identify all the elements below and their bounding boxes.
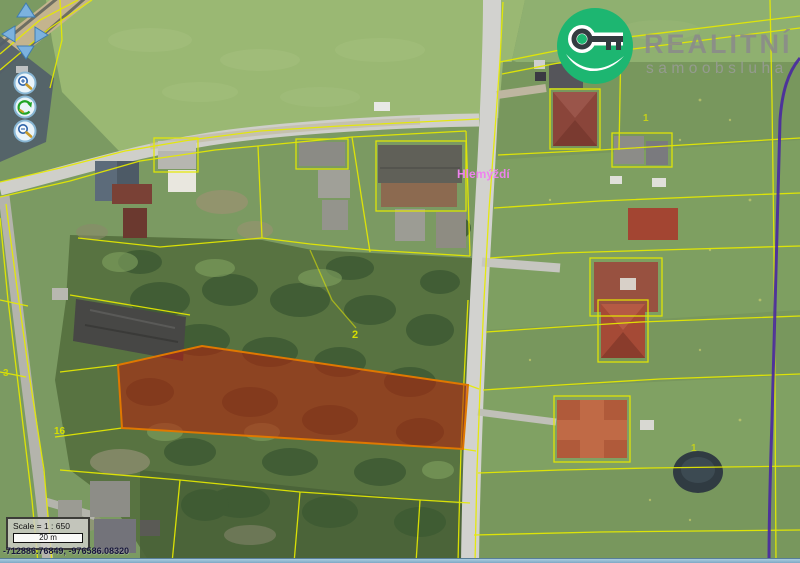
refresh-button[interactable] <box>15 97 36 118</box>
pan-down-arrow[interactable] <box>17 46 34 59</box>
window-bottom-strip <box>0 558 800 563</box>
cursor-coordinates: -712886.76849, -976586.08320 <box>3 546 129 556</box>
parcel-number: 1 <box>691 443 697 454</box>
parcel-number: 1 <box>643 113 649 124</box>
scale-bar-label: 20 m <box>14 534 82 542</box>
map-viewer-window: 2 16 1 1 3 Hlemýždí <box>0 0 800 563</box>
pan-right-arrow[interactable] <box>35 27 48 43</box>
map-canvas[interactable]: 2 16 1 1 3 Hlemýždí <box>0 0 800 563</box>
scale-text: Scale = 1 : 650 <box>13 521 88 531</box>
place-label: Hlemýždí <box>457 167 510 181</box>
scale-bar: 20 m <box>13 533 83 543</box>
parcel-number: 2 <box>352 329 358 341</box>
pan-up-arrow[interactable] <box>17 3 35 17</box>
zoom-out-button[interactable] <box>15 121 36 142</box>
pan-left-arrow[interactable] <box>2 26 15 42</box>
parcel-number: 3 <box>3 368 9 379</box>
map-navigation-controls <box>0 0 60 150</box>
parcel-number: 16 <box>54 426 66 437</box>
zoom-in-button[interactable] <box>15 73 36 94</box>
